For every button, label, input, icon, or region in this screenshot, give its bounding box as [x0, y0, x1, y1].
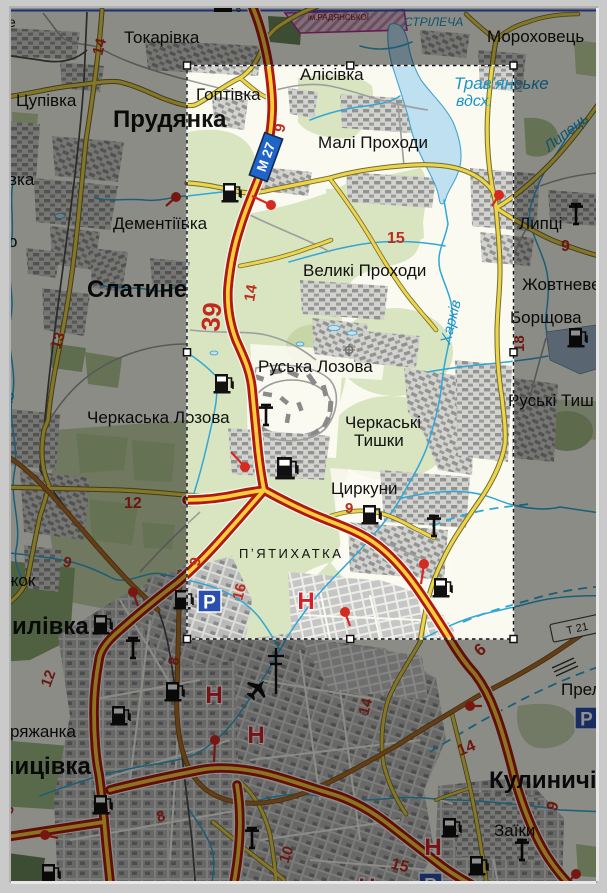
svg-text:P: P: [203, 593, 216, 614]
svg-text:ПʼЯТИХАТКА: ПʼЯТИХАТКА: [239, 546, 343, 561]
svg-text:Малі Проходи: Малі Проходи: [318, 133, 428, 152]
svg-text:Черкаські: Черкаські: [345, 413, 421, 432]
svg-text:9: 9: [345, 500, 353, 517]
svg-text:Великі Проходи: Великі Проходи: [303, 261, 426, 280]
svg-text:Н: Н: [297, 588, 314, 615]
svg-text:39: 39: [195, 301, 227, 332]
svg-text:Тишки: Тишки: [354, 431, 404, 450]
svg-text:Циркуни: Циркуни: [331, 479, 398, 498]
svg-text:Алісівка: Алісівка: [300, 65, 364, 84]
svg-text:вдсх.: вдсх.: [456, 93, 493, 110]
svg-text:Гоптівка: Гоптівка: [196, 85, 261, 104]
svg-text:15: 15: [387, 230, 405, 247]
svg-text:Руська Лозова: Руська Лозова: [258, 357, 373, 376]
